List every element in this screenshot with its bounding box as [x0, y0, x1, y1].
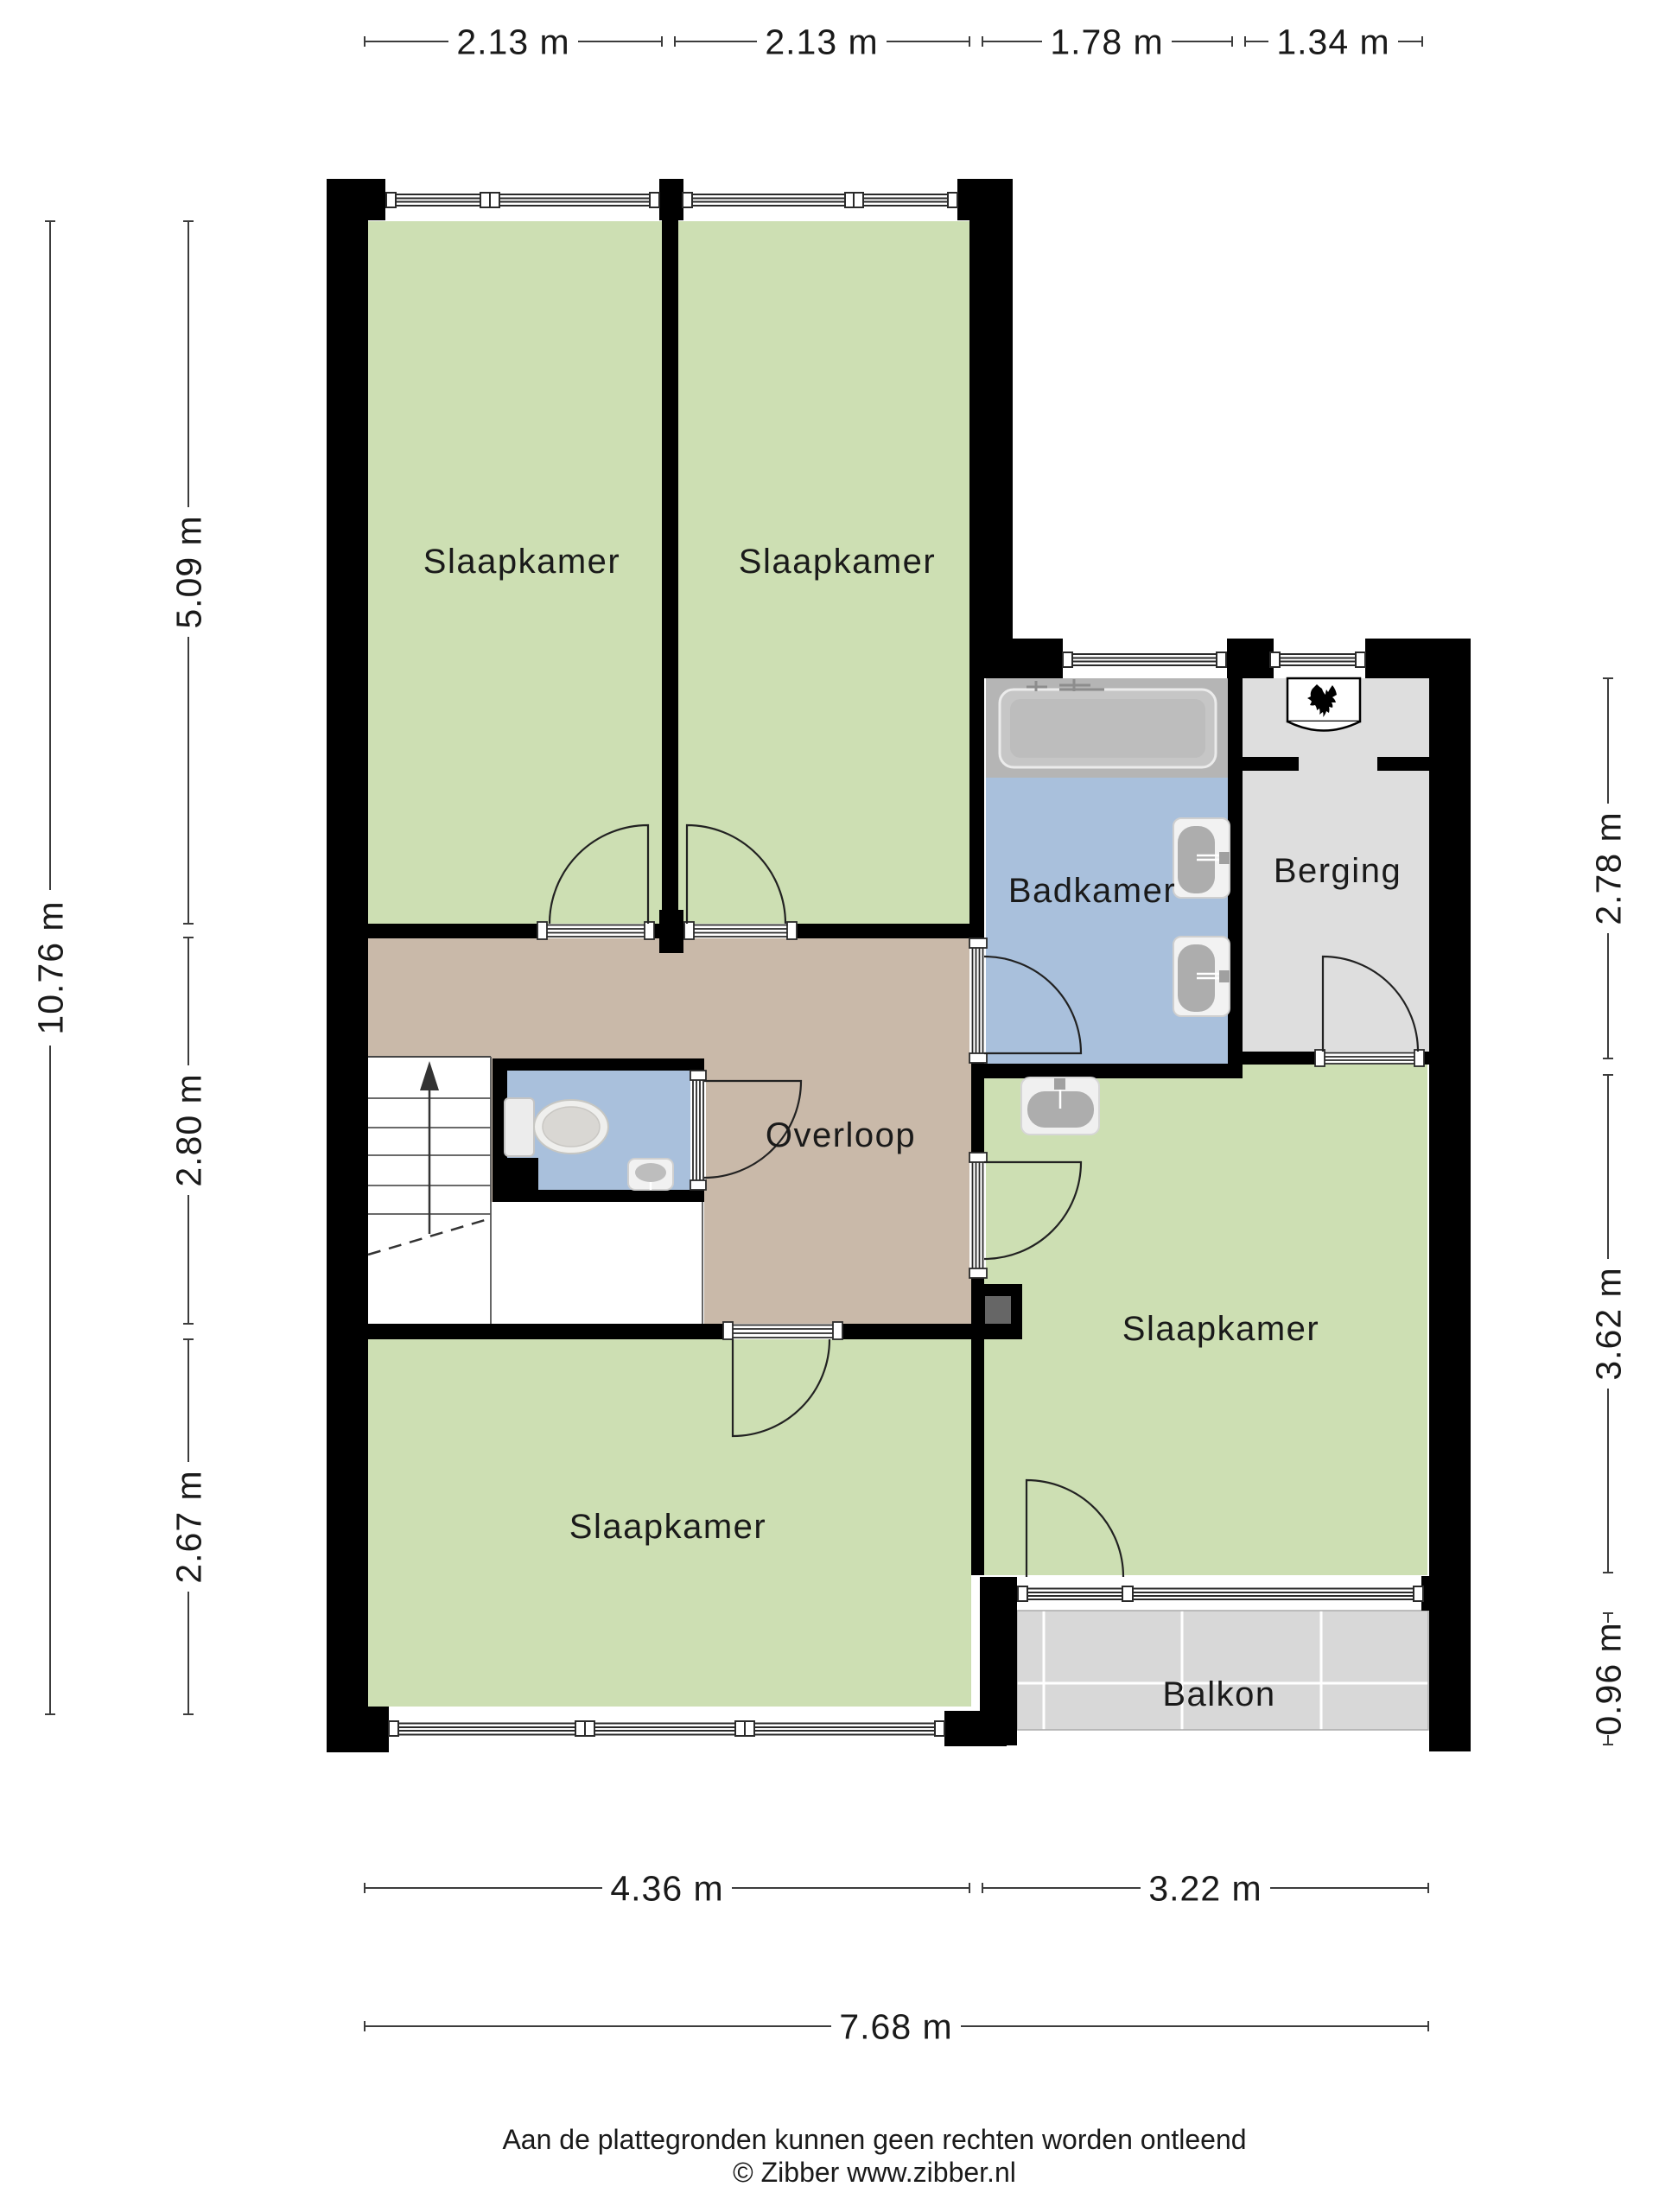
svg-text:Badkamer: Badkamer: [1008, 872, 1176, 910]
svg-text:2.80 m: 2.80 m: [169, 1073, 209, 1186]
svg-text:4.36 m: 4.36 m: [610, 1869, 723, 1909]
svg-text:1.34 m: 1.34 m: [1276, 22, 1389, 62]
svg-text:2.13 m: 2.13 m: [765, 22, 878, 62]
svg-text:10.76 m: 10.76 m: [31, 900, 71, 1034]
svg-text:3.62 m: 3.62 m: [1589, 1267, 1629, 1380]
svg-text:0.96 m: 0.96 m: [1589, 1622, 1629, 1735]
svg-text:Overloop: Overloop: [766, 1116, 916, 1154]
svg-text:Berging: Berging: [1274, 852, 1402, 890]
svg-text:Slaapkamer: Slaapkamer: [1122, 1310, 1319, 1348]
svg-text:2.78 m: 2.78 m: [1589, 811, 1629, 925]
svg-text:5.09 m: 5.09 m: [169, 515, 209, 628]
svg-text:© Zibber www.zibber.nl: © Zibber www.zibber.nl: [733, 2157, 1016, 2188]
svg-text:Aan de plattegronden kunnen ge: Aan de plattegronden kunnen geen rechten…: [502, 2124, 1246, 2155]
svg-text:Slaapkamer: Slaapkamer: [423, 543, 620, 581]
svg-text:2.13 m: 2.13 m: [456, 22, 569, 62]
svg-text:2.67 m: 2.67 m: [169, 1470, 209, 1583]
svg-text:Balkon: Balkon: [1162, 1675, 1275, 1713]
svg-text:Slaapkamer: Slaapkamer: [569, 1508, 766, 1546]
svg-text:3.22 m: 3.22 m: [1148, 1869, 1262, 1909]
svg-text:7.68 m: 7.68 m: [839, 2007, 952, 2047]
svg-text:1.78 m: 1.78 m: [1050, 22, 1163, 62]
svg-text:Slaapkamer: Slaapkamer: [739, 543, 936, 581]
